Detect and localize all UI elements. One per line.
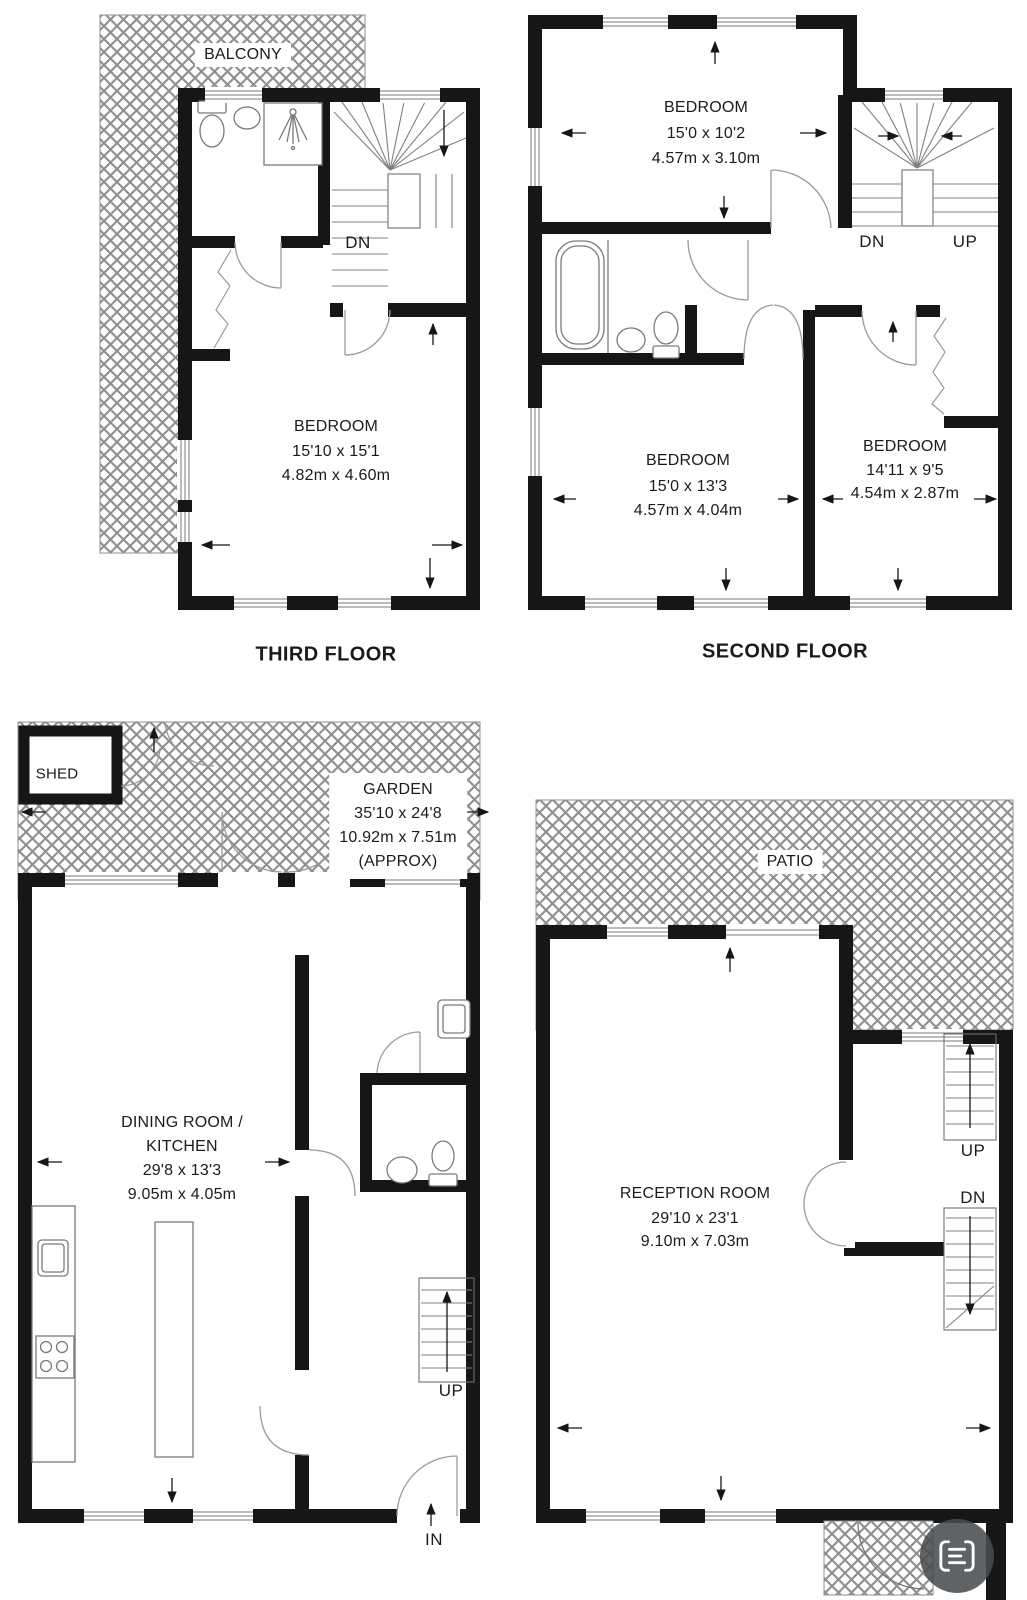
scan-text-icon bbox=[938, 1537, 976, 1575]
sink-icon bbox=[387, 1157, 417, 1183]
garden-label-block: GARDEN 35'10 x 24'8 10.92m x 7.51m (APPR… bbox=[329, 773, 467, 879]
ground-left-outline bbox=[25, 880, 473, 1516]
second-floor-plan bbox=[527, 14, 1005, 611]
ground-right-stairs-dn-label: DN bbox=[960, 1188, 986, 1208]
third-bedroom-name: BEDROOM bbox=[294, 418, 378, 436]
reception-room-size-imperial: 29'10 x 23'1 bbox=[651, 1210, 739, 1228]
dining-room-name-line2: KITCHEN bbox=[146, 1138, 218, 1156]
scan-button[interactable] bbox=[920, 1519, 994, 1593]
second-bedroom1-name: BEDROOM bbox=[664, 99, 748, 117]
third-floor-title: THIRD FLOOR bbox=[255, 644, 396, 667]
garden-size-imperial: 35'10 x 24'8 bbox=[339, 802, 457, 826]
sink-icon bbox=[234, 107, 260, 129]
second-bedroom3-name: BEDROOM bbox=[863, 438, 947, 456]
second-bedroom2-size-imperial: 15'0 x 13'3 bbox=[649, 478, 728, 496]
ground-left-stairs-up-label: UP bbox=[439, 1381, 464, 1401]
third-floor-plan bbox=[100, 15, 473, 611]
stove-icon bbox=[36, 1336, 74, 1378]
reception-room-size-metric: 9.10m x 7.03m bbox=[641, 1233, 749, 1251]
toilet-icon bbox=[654, 312, 678, 344]
second-stairs-up-label: UP bbox=[953, 232, 978, 252]
entrance-in-label: IN bbox=[425, 1530, 443, 1550]
second-bedroom1-size-metric: 4.57m x 3.10m bbox=[652, 150, 760, 168]
garden-name: GARDEN bbox=[339, 778, 457, 802]
third-bedroom-size-metric: 4.82m x 4.60m bbox=[282, 467, 390, 485]
kitchen-island bbox=[155, 1222, 193, 1457]
third-bedroom-size-imperial: 15'10 x 15'1 bbox=[292, 443, 380, 461]
dining-room-size-metric: 9.05m x 4.05m bbox=[128, 1186, 236, 1204]
balcony-label: BALCONY bbox=[195, 43, 291, 67]
second-stairs-dn-label: DN bbox=[859, 232, 885, 252]
second-bedroom2-name: BEDROOM bbox=[646, 452, 730, 470]
garden-size-metric: 10.92m x 7.51m bbox=[339, 826, 457, 850]
second-bedroom1-size-imperial: 15'0 x 10'2 bbox=[667, 125, 746, 143]
patio-label: PATIO bbox=[758, 850, 823, 874]
second-bedroom3-size-imperial: 14'11 x 9'5 bbox=[866, 462, 943, 480]
toilet-icon bbox=[432, 1141, 454, 1171]
front-steps-hatch bbox=[824, 1521, 933, 1595]
ground-floor-right-plan bbox=[536, 800, 1013, 1600]
ground-right-stairs-up-label: UP bbox=[961, 1141, 986, 1161]
dining-room-size-imperial: 29'8 x 13'3 bbox=[143, 1162, 222, 1180]
dining-room-name-line1: DINING ROOM / bbox=[121, 1114, 243, 1132]
second-floor-title: SECOND FLOOR bbox=[702, 641, 868, 664]
shed-label: SHED bbox=[36, 766, 78, 783]
garden-approx: (APPROX) bbox=[339, 850, 457, 874]
sink-icon bbox=[617, 328, 645, 352]
second-bedroom3-size-metric: 4.54m x 2.87m bbox=[851, 485, 959, 503]
floorplan-page: BALCONY BEDROOM 15'10 x 15'1 4.82m x 4.6… bbox=[0, 0, 1027, 1600]
reception-room-name: RECEPTION ROOM bbox=[620, 1185, 770, 1203]
third-stairs-dn-label: DN bbox=[345, 233, 371, 253]
second-bedroom2-size-metric: 4.57m x 4.04m bbox=[634, 502, 742, 520]
